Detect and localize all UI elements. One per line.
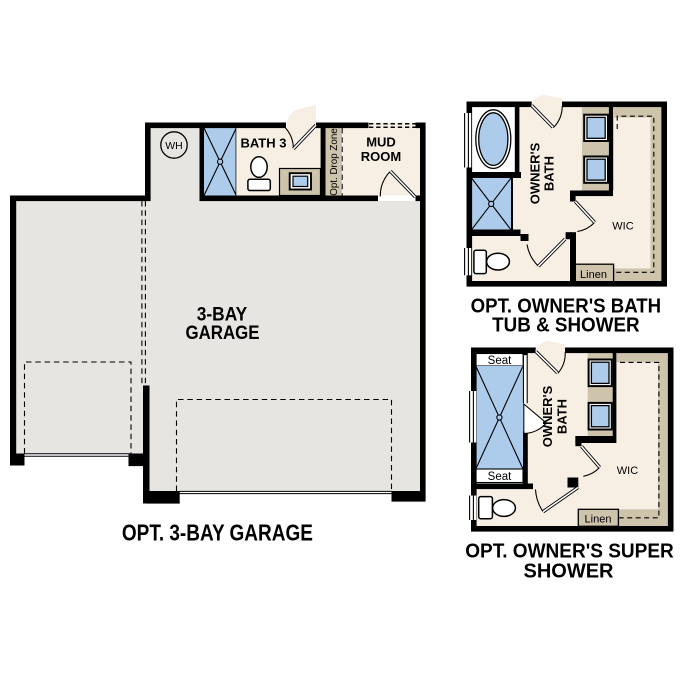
svg-text:OPT. 3-BAY GARAGE: OPT. 3-BAY GARAGE (122, 520, 313, 546)
svg-text:Linen: Linen (585, 513, 612, 525)
svg-text:GARAGE: GARAGE (186, 322, 260, 344)
svg-text:Linen: Linen (580, 269, 607, 281)
svg-text:OWNER'S: OWNER'S (540, 385, 555, 447)
svg-text:OWNER'S: OWNER'S (528, 142, 543, 204)
svg-text:WIC: WIC (617, 465, 638, 477)
svg-text:Opt. Drop Zone: Opt. Drop Zone (329, 128, 340, 196)
svg-text:BATH: BATH (542, 156, 557, 191)
svg-text:TUB & SHOWER: TUB & SHOWER (492, 314, 640, 336)
svg-text:OPT. OWNER'S SUPER: OPT. OWNER'S SUPER (465, 540, 674, 562)
svg-text:BATH 3: BATH 3 (241, 136, 287, 151)
svg-text:ROOM: ROOM (361, 149, 401, 164)
svg-text:Seat: Seat (488, 471, 512, 483)
svg-text:BATH: BATH (555, 399, 570, 434)
svg-text:MUD: MUD (366, 135, 396, 150)
svg-text:Seat: Seat (488, 355, 512, 367)
svg-text:SHOWER: SHOWER (524, 560, 615, 582)
svg-text:WIC: WIC (612, 221, 633, 233)
svg-text:WH: WH (165, 140, 183, 152)
